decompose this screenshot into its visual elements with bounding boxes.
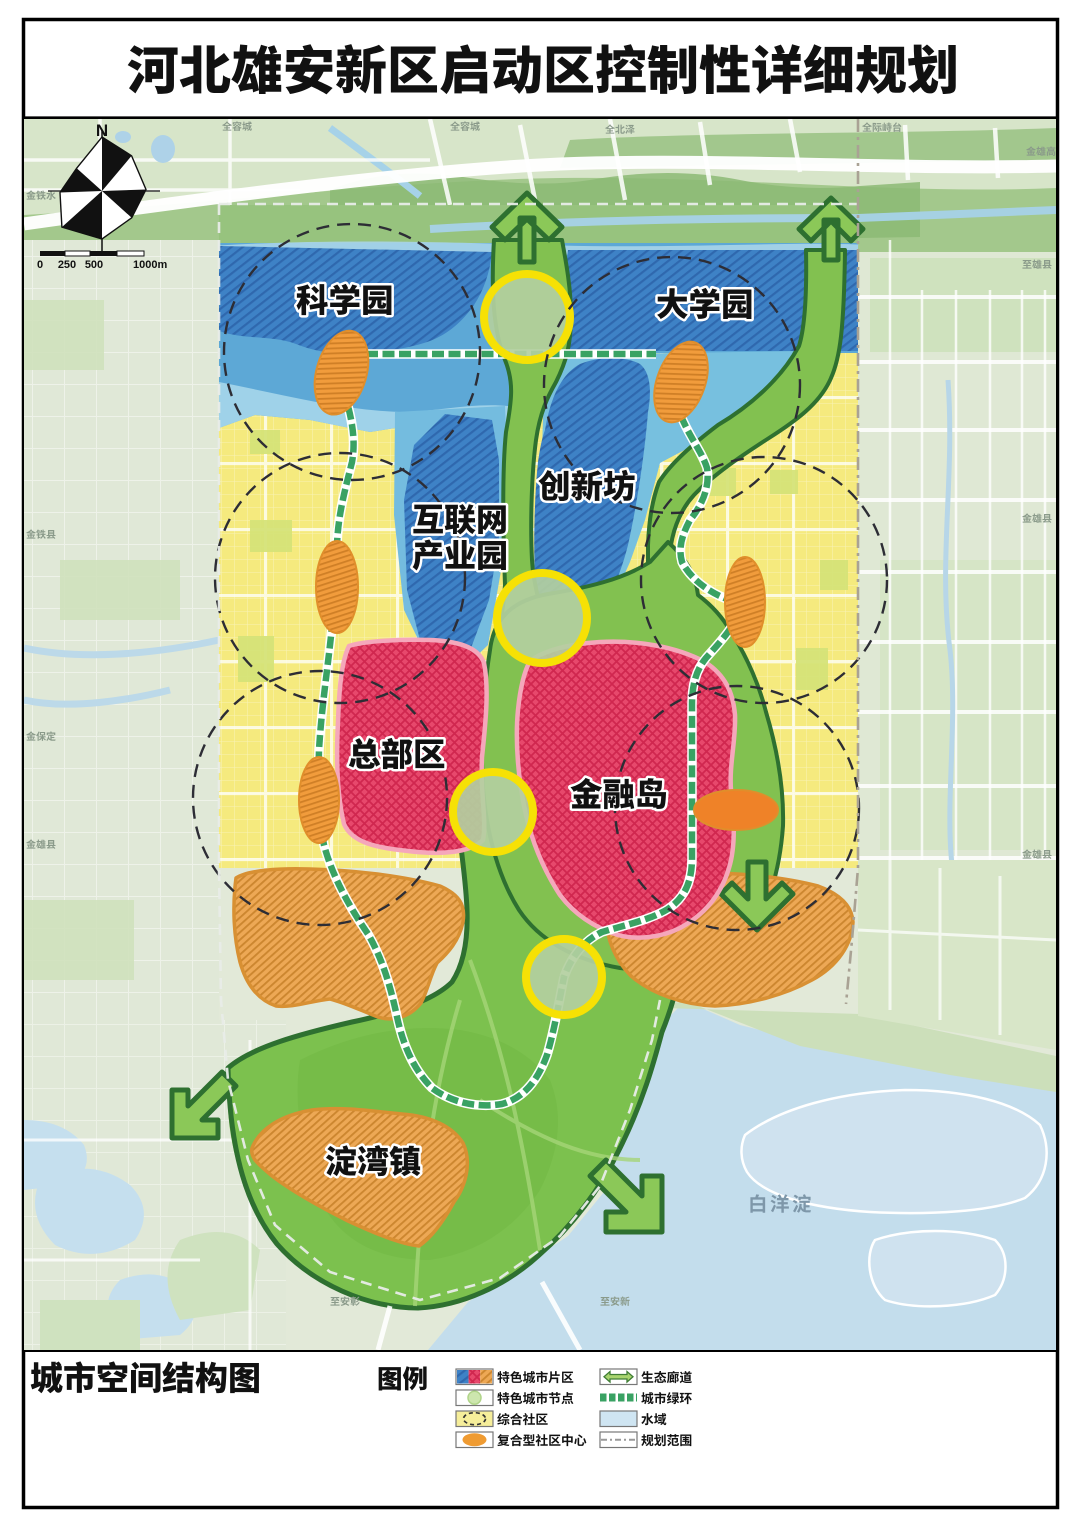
svg-text:N: N bbox=[96, 121, 108, 140]
svg-text:250: 250 bbox=[58, 259, 76, 271]
svg-text:1000m: 1000m bbox=[133, 259, 167, 271]
svg-text:0: 0 bbox=[37, 259, 43, 271]
svg-text:500: 500 bbox=[85, 259, 103, 271]
